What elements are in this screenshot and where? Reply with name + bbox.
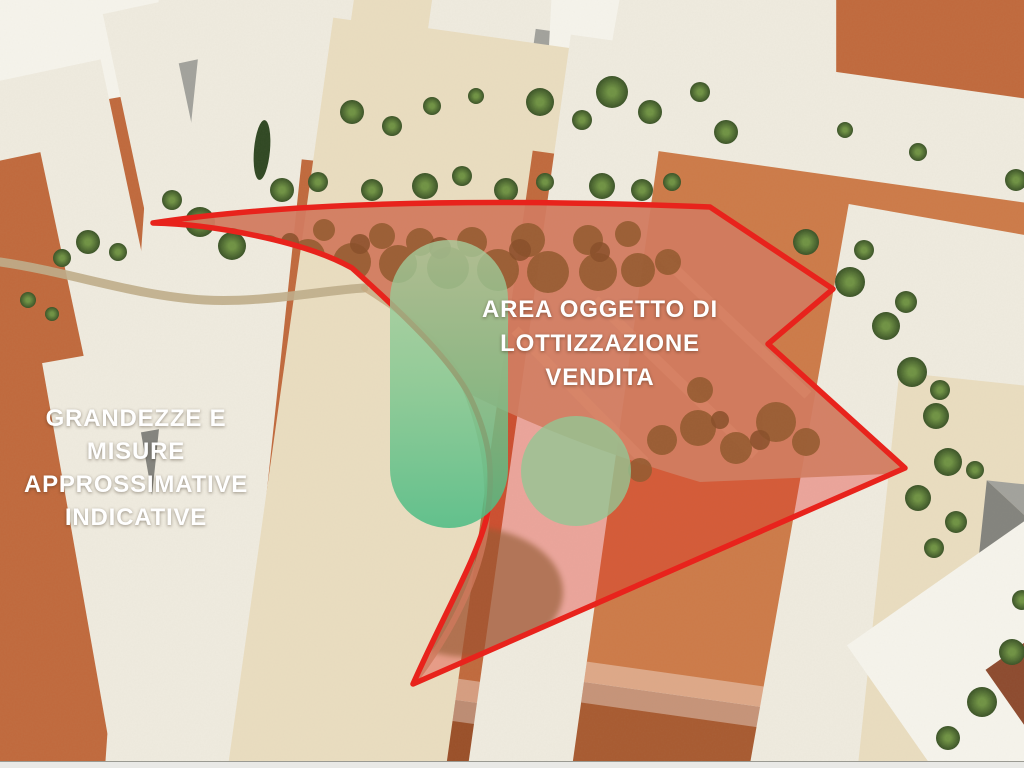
photo-bottom-margin [0,761,1024,768]
disclaimer-line2: APPROSSIMATIVE [0,468,272,501]
disclaimer-line1: GRANDEZZE E MISURE [0,402,272,468]
measurements-disclaimer-label: GRANDEZZE E MISURE APPROSSIMATIVE INDICA… [0,402,272,534]
disclaimer-line3: INDICATIVE [0,501,272,534]
lot-sale-label-line2: LOTTIZZAZIONE [450,327,750,361]
lot-sale-label: AREA OGGETTO DI LOTTIZZAZIONE VENDITA [450,293,750,395]
lot-sale-label-line1: AREA OGGETTO DI [450,293,750,327]
watermark-dot [521,416,631,526]
lot-sale-label-line3: VENDITA [450,361,750,395]
listing-photo-canvas: AREA OGGETTO DI LOTTIZZAZIONE VENDITA GR… [0,0,1024,768]
